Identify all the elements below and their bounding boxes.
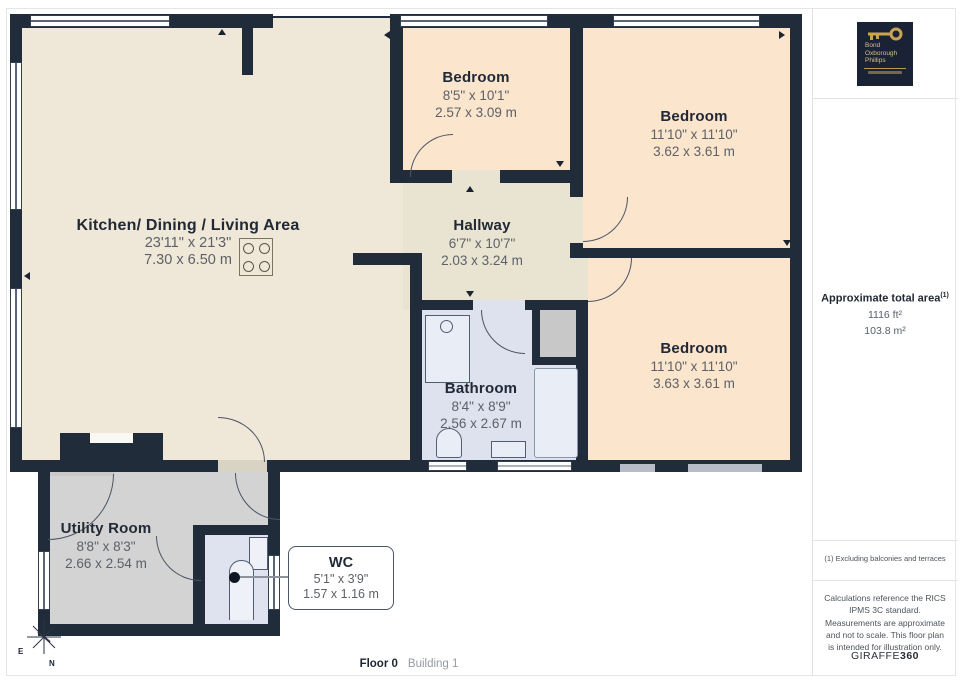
room-dim-imperial: 8'5" x 10'1" [435, 87, 517, 104]
tick-icon [779, 31, 785, 39]
window-bedroom2-top [613, 15, 760, 27]
window-kitchen-left-lower [10, 288, 22, 428]
wall-bedroom1-left [390, 28, 403, 183]
sidebar-divider-vertical [812, 8, 813, 676]
room-name: Bedroom [650, 339, 737, 358]
floor-label: Floor 0 [360, 658, 398, 670]
total-area-title-text: Approximate total area [821, 293, 940, 305]
logo-rule [864, 68, 906, 69]
logo-line-3: Phillips [857, 57, 913, 65]
wall-bathroom-left [410, 253, 422, 462]
window-utility-left [38, 551, 50, 610]
room-label-bedroom-3: Bedroom 11'10" x 11'10" 3.63 x 3.61 m [650, 339, 737, 392]
sidebar-divider-1 [812, 98, 958, 99]
room-label-kitchen: Kitchen/ Dining / Living Area 23'11" x 2… [76, 216, 299, 269]
wc-callout-line [240, 576, 288, 578]
logo-line-2: Oxborough [857, 50, 913, 58]
room-label-bedroom-2: Bedroom 11'10" x 11'10" 3.62 x 3.61 m [650, 107, 737, 160]
wall-top-stub [242, 28, 253, 75]
room-name: WC [329, 555, 353, 572]
room-name: Kitchen/ Dining / Living Area [76, 216, 299, 235]
total-area-title: Approximate total area(1) [812, 292, 958, 305]
area-footnote: (1) Excluding balconies and terraces [812, 554, 958, 563]
compass-east-label: E [18, 647, 24, 656]
room-name: Bathroom [440, 379, 522, 398]
logo-line-1: Bond [857, 42, 913, 50]
room-dim-imperial: 6'7" x 10'7" [441, 235, 523, 252]
compass-north-label: N [49, 659, 55, 668]
sidebar-divider-3 [812, 580, 958, 581]
room-name: Bedroom [435, 68, 517, 87]
agency-logo: Bond Oxborough Phillips [857, 22, 913, 86]
wall-bedroom2-bedroom3 [570, 248, 802, 258]
room-label-hallway: Hallway 6'7" x 10'7" 2.03 x 3.24 m [441, 216, 523, 269]
room-dim-imperial: 8'4" x 8'9" [440, 398, 522, 415]
wc-callout-dot [229, 572, 240, 583]
tick-icon [466, 291, 474, 297]
wall-right [790, 14, 802, 472]
window-wc-right [268, 555, 280, 610]
room-label-utility: Utility Room 8'8" x 8'3" 2.66 x 2.54 m [61, 519, 152, 572]
room-dim-imperial: 11'10" x 11'10" [650, 126, 737, 143]
room-dim-imperial: 11'10" x 11'10" [650, 358, 737, 375]
brand-prefix: GIRAFFE [851, 650, 900, 662]
room-dim-metric: 2.57 x 3.09 m [435, 104, 517, 121]
sidebar-divider-2 [812, 540, 958, 541]
floor-footer: Floor 0 Building 1 [309, 658, 509, 670]
floor-patch-bedroom3-door [576, 258, 588, 300]
giraffe360-brand: GIRAFFE360 [812, 650, 958, 662]
wc-callout: WC 5'1" x 3'9" 1.57 x 1.16 m [288, 546, 394, 610]
total-area-block: Approximate total area(1) 1116 ft² 103.8… [812, 292, 958, 337]
wall-wc-top [193, 525, 280, 535]
window-kitchen-top [30, 15, 170, 27]
room-dim-metric: 3.63 x 3.61 m [650, 375, 737, 392]
window-bedroom1-top [400, 15, 548, 27]
building-label: Building 1 [408, 658, 459, 670]
window-hall-bottom [497, 461, 572, 471]
wall-bedroom1-bedroom2 [570, 14, 583, 197]
total-area-imperial: 1116 ft² [812, 309, 958, 321]
wall-bathroom-top-a [422, 300, 473, 310]
disclaimer-text: Calculations reference the RICS IPMS 3C … [824, 592, 946, 654]
key-icon [865, 26, 905, 42]
tick-icon [384, 31, 390, 39]
room-dim-metric: 2.66 x 2.54 m [61, 555, 152, 572]
toilet-bathroom-icon [436, 428, 462, 458]
room-name: Bedroom [650, 107, 737, 126]
room-dim-imperial: 5'1" x 3'9" [314, 572, 369, 587]
alcove-notch [90, 433, 133, 443]
toilet-wc-icon [229, 560, 254, 620]
room-name: Hallway [441, 216, 523, 235]
floor-cupboard [540, 308, 578, 357]
room-label-bathroom: Bathroom 8'4" x 8'9" 2.56 x 2.67 m [440, 379, 522, 432]
wall-top-thin [273, 16, 390, 18]
window-bedroom3-bottom-b [688, 464, 762, 472]
tick-icon [783, 240, 791, 246]
sink-bathroom-icon [491, 441, 526, 458]
window-bathroom-bottom [428, 461, 467, 471]
compass-icon: E N [16, 606, 76, 672]
tick-icon [466, 186, 474, 192]
shower-head-icon [440, 320, 453, 333]
tick-icon [24, 272, 30, 280]
room-dim-metric: 1.57 x 1.16 m [303, 587, 379, 602]
wall-cupboard-left [532, 310, 540, 357]
floor-patch-top-opening [273, 18, 390, 28]
wall-cupboard-bottom [532, 357, 588, 365]
room-dim-imperial: 8'8" x 8'3" [61, 538, 152, 555]
bathtub-icon [534, 368, 578, 458]
tick-icon [556, 161, 564, 167]
room-dim-metric: 2.56 x 2.67 m [440, 415, 522, 432]
brand-suffix: 360 [900, 650, 919, 662]
room-dim-imperial: 23'11" x 21'3" [76, 235, 299, 252]
total-area-superscript: (1) [940, 292, 949, 299]
window-kitchen-left-upper [10, 62, 22, 210]
room-dim-metric: 2.03 x 3.24 m [441, 252, 523, 269]
total-area-metric: 103.8 m² [812, 325, 958, 337]
room-dim-metric: 3.62 x 3.61 m [650, 143, 737, 160]
room-label-bedroom-1: Bedroom 8'5" x 10'1" 2.57 x 3.09 m [435, 68, 517, 121]
room-name: Utility Room [61, 519, 152, 538]
floorplan-page: { "rooms": { "kitchen": {"name": "Kitche… [0, 0, 965, 683]
logo-tagline [868, 71, 902, 74]
tick-icon [218, 29, 226, 35]
window-bedroom3-bottom-a [620, 464, 655, 472]
wall-bathroom-top-b [525, 300, 588, 310]
room-dim-metric: 7.30 x 6.50 m [76, 252, 299, 269]
